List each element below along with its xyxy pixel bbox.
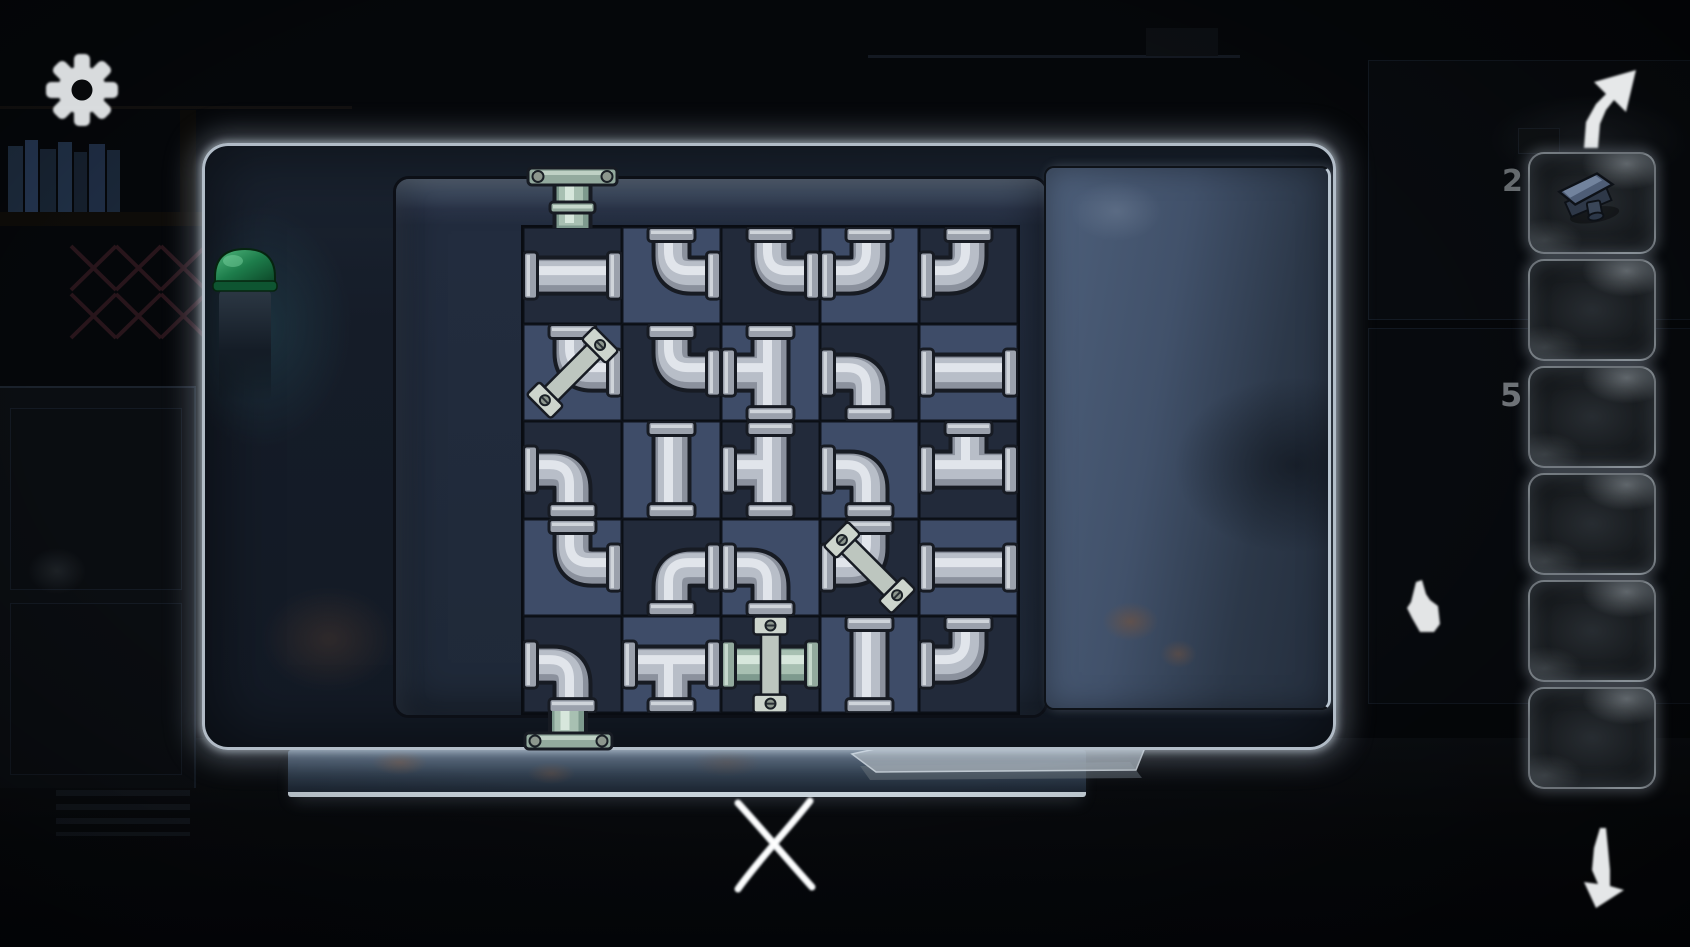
pipe-cell-r3c1[interactable] <box>523 421 622 518</box>
cabinet-silhouette <box>0 386 196 788</box>
pipe-cell-r5c5[interactable] <box>919 616 1018 713</box>
pipe-cell-r3c4[interactable] <box>820 421 919 518</box>
pipe-cell-r1c2[interactable] <box>622 227 721 324</box>
pipe-cell-r3c2[interactable] <box>622 421 721 518</box>
wall-digit-2: 2 <box>1502 164 1523 199</box>
pipe-cell-r1c5[interactable] <box>919 227 1018 324</box>
wall-digit-5: 5 <box>1500 376 1522 414</box>
pipe-cell-r4c2[interactable] <box>622 519 721 616</box>
gear-icon <box>42 50 122 130</box>
metal-knob-item <box>1530 154 1650 248</box>
green-bottle <box>209 237 281 407</box>
inventory-slot-1[interactable] <box>1528 152 1656 254</box>
inventory-slot-3[interactable] <box>1528 366 1656 468</box>
pipe-cell-r2c3[interactable] <box>721 324 820 421</box>
pipe-cell-r5c4[interactable] <box>820 616 919 713</box>
pipe-cell-r1c1[interactable] <box>523 227 622 324</box>
pipe-cell-r2c5[interactable] <box>919 324 1018 421</box>
settings-button[interactable] <box>42 50 122 130</box>
inventory-slot-5[interactable] <box>1528 580 1656 682</box>
pipe-grid <box>523 227 1018 713</box>
pipe-cell-r1c3[interactable] <box>721 227 820 324</box>
cabinet-highlight <box>28 548 86 594</box>
lattice-grate <box>66 238 216 348</box>
pipe-cell-r4c5[interactable] <box>919 519 1018 616</box>
inventory-slot-4[interactable] <box>1528 473 1656 575</box>
curved-arrow-down-icon <box>1576 826 1646 912</box>
pipe-cell-r4c4[interactable] <box>820 519 919 616</box>
game-screen: 2 5 <box>0 0 1690 947</box>
cabinet-door-lower <box>10 603 182 775</box>
pipe-cell-r5c2[interactable] <box>622 616 721 713</box>
pipe-cell-r2c1[interactable] <box>523 324 622 421</box>
pipe-cell-r1c4[interactable] <box>820 227 919 324</box>
inlet-pipe <box>523 166 622 228</box>
panel-door-flap <box>1044 166 1331 710</box>
nav-up-button[interactable] <box>1572 62 1644 150</box>
pipe-cell-r3c3[interactable] <box>721 421 820 518</box>
pipe-cell-r3c5[interactable] <box>919 421 1018 518</box>
pipe-cell-r4c3[interactable] <box>721 519 820 616</box>
inventory-slot-6[interactable] <box>1528 687 1656 789</box>
pipe-cell-r5c3[interactable] <box>721 616 820 713</box>
pipe-cell-r2c4[interactable] <box>820 324 919 421</box>
wall-plaque <box>1518 128 1560 154</box>
inventory-slot-2[interactable] <box>1528 259 1656 361</box>
outlet-pipe <box>523 711 622 751</box>
curved-arrow-up-right-icon <box>1572 62 1644 150</box>
close-button[interactable] <box>726 793 826 897</box>
pipe-cell-r4c1[interactable] <box>523 519 622 616</box>
nav-down-button[interactable] <box>1576 826 1646 912</box>
pipe-cell-r5c1[interactable] <box>523 616 622 713</box>
close-x-icon <box>726 793 826 897</box>
wall-vent <box>1146 28 1218 56</box>
pipe-cell-r2c2[interactable] <box>622 324 721 421</box>
